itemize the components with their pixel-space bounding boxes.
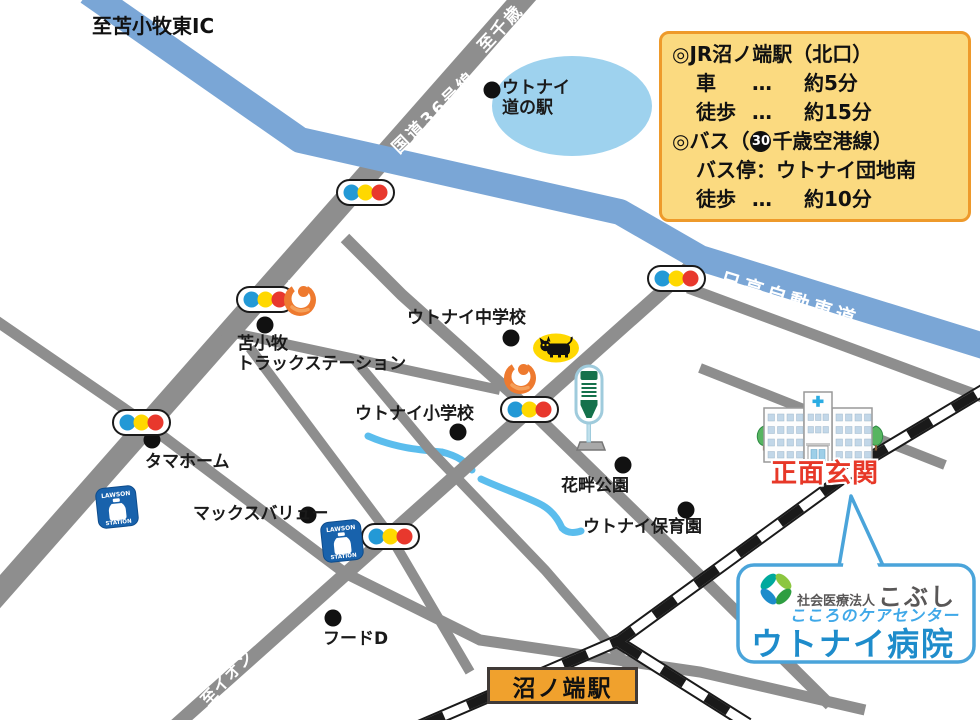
- info-walk2-value: 約10分: [804, 185, 872, 214]
- info-row-walk1: 徒歩 … 約15分: [696, 98, 958, 127]
- poi-label-line: 苫小牧: [237, 334, 406, 354]
- info-row-bus: ◎バス（ 30 千歳空港線）: [672, 127, 958, 156]
- poi-label-nursery: ウトナイ保育園: [583, 517, 702, 537]
- poi-dot: [484, 82, 501, 99]
- bus-route-30-badge: 30: [750, 131, 771, 152]
- info-bus-stop: バス停：ウトナイ団地南: [696, 156, 958, 185]
- poi-dot: [615, 457, 632, 474]
- info-walk1-value: 約15分: [804, 98, 872, 127]
- info-row-car: 車 … 約5分: [696, 69, 958, 98]
- poi-label-elementary: ウトナイ小学校: [355, 404, 474, 424]
- numanohata-station-box: 沼ノ端駅: [487, 667, 638, 704]
- black-cat-logo: [533, 334, 579, 363]
- info-bus-suffix: 千歳空港線）: [772, 127, 892, 156]
- poi-dot: [325, 610, 342, 627]
- poi-label-line: ウトナイ: [502, 78, 570, 98]
- main-entrance-label: 正面玄関: [771, 453, 879, 490]
- info-walk1-label: 徒歩: [696, 98, 752, 127]
- flame-logo: [504, 357, 536, 394]
- hospital-name: ウトナイ病院: [751, 619, 955, 665]
- poi-label-food-d: フードD: [323, 629, 388, 649]
- info-walk1-dots: …: [752, 98, 804, 127]
- poi-label-tamahome: タマホーム: [145, 452, 230, 472]
- poi-label-truck-station: 苫小牧 トラックステーション: [237, 334, 406, 374]
- access-map: LAWSON STATION: [0, 0, 980, 720]
- info-walk2-label: 徒歩: [696, 185, 752, 214]
- traffic-light-icon: [501, 397, 558, 422]
- poi-label-line: トラックステーション: [237, 354, 406, 374]
- poi-label-junior-high: ウトナイ中学校: [407, 308, 526, 328]
- info-row-walk2: 徒歩 … 約10分: [696, 185, 958, 214]
- flame-logo: [284, 279, 316, 316]
- traffic-light-icon: [648, 266, 705, 291]
- access-info-box: ◎JR沼ノ端駅（北口） 車 … 約5分 徒歩 … 約15分 ◎バス（ 30 千歳…: [659, 31, 971, 222]
- info-car-dots: …: [752, 69, 804, 98]
- poi-dot: [503, 330, 520, 347]
- poi-label-maxvalu: マックスバリュー: [193, 504, 329, 524]
- info-car-label: 車: [696, 69, 752, 98]
- poi-label-line: 道の駅: [502, 98, 570, 118]
- poi-dot: [450, 424, 467, 441]
- traffic-light-icon: [362, 524, 419, 549]
- poi-dot: [257, 317, 274, 334]
- info-walk2-dots: …: [752, 185, 804, 214]
- traffic-light-icon: [113, 410, 170, 435]
- label-to-tomakomai-higashi-ic: 至苫小牧東IC: [92, 10, 214, 39]
- bus-stop-icon: [576, 366, 605, 450]
- poi-dot: [678, 502, 695, 519]
- poi-label-park: 花畔公園: [561, 476, 629, 496]
- info-car-value: 約5分: [804, 69, 858, 98]
- info-title: ◎JR沼ノ端駅（北口）: [672, 40, 958, 69]
- traffic-light-icon: [337, 180, 394, 205]
- poi-label-michinoeki: ウトナイ 道の駅: [502, 78, 570, 118]
- info-bus-prefix: ◎バス（: [672, 127, 749, 156]
- lawson-logo: [95, 485, 139, 529]
- lawson-logo: [320, 519, 364, 563]
